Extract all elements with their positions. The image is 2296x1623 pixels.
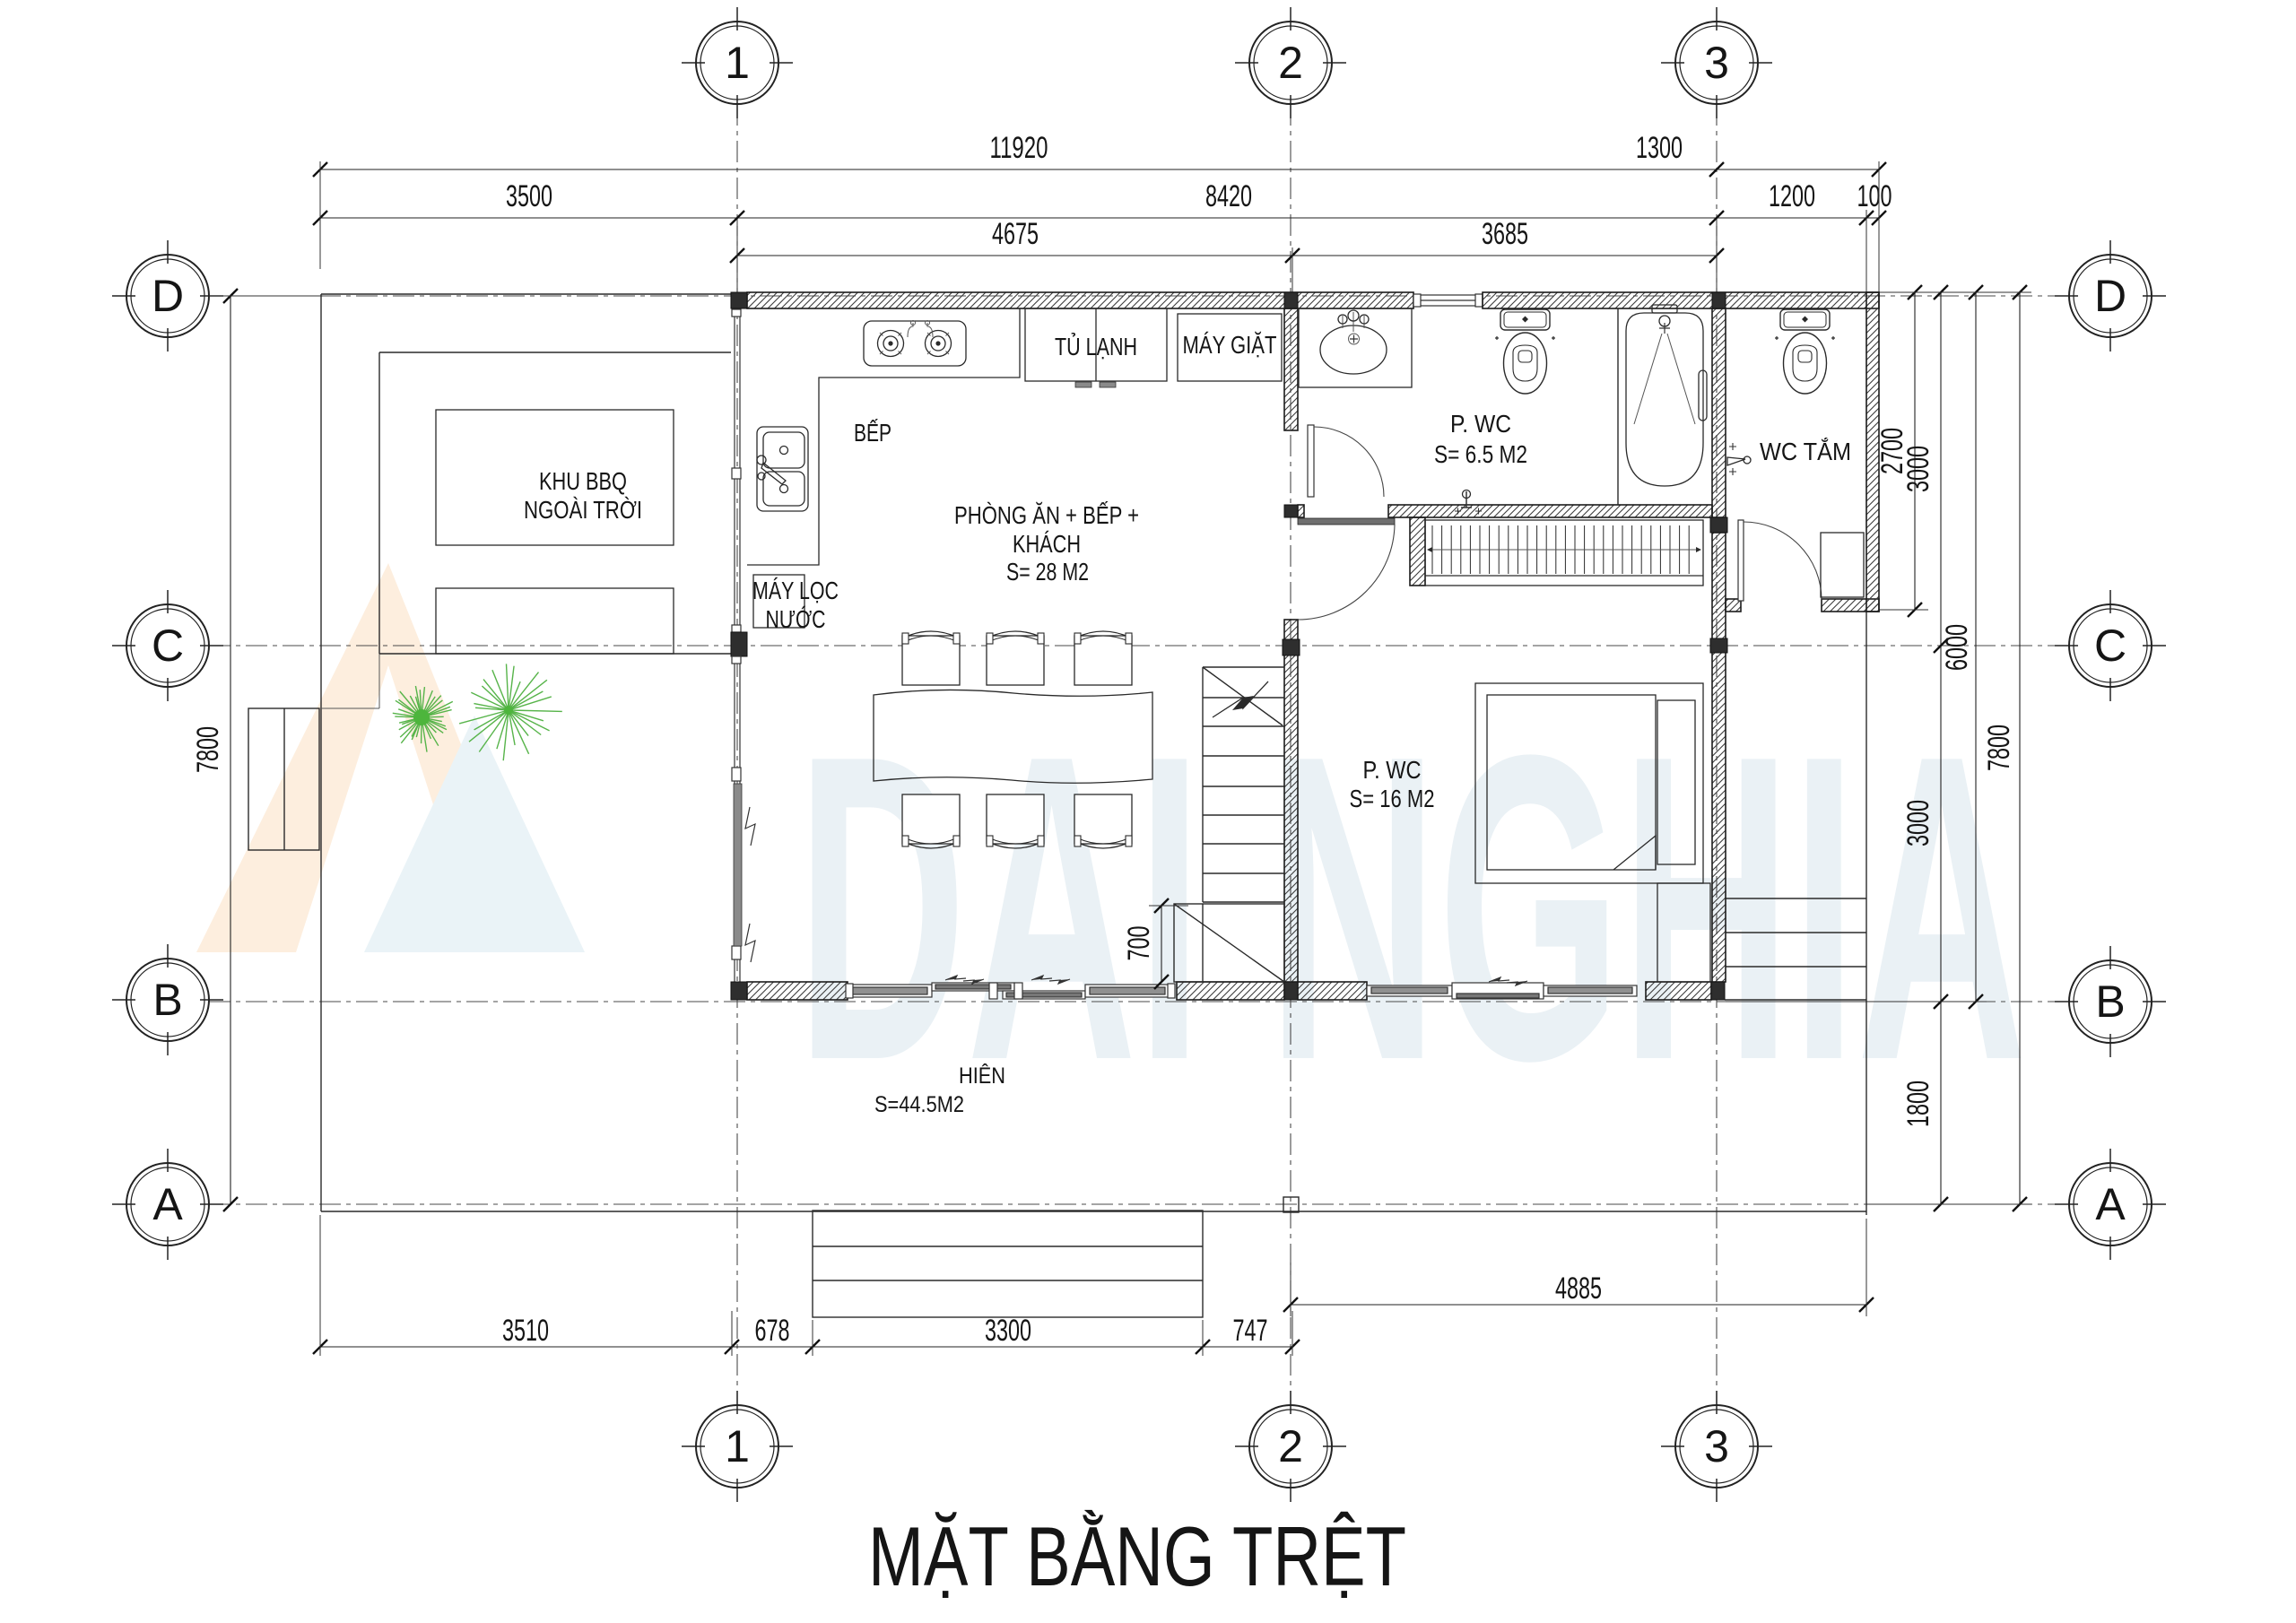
svg-text:D: D	[2094, 271, 2126, 321]
svg-text:S=44.5M2: S=44.5M2	[874, 1092, 964, 1117]
svg-text:3000: 3000	[1901, 446, 1935, 492]
svg-text:P. WC: P. WC	[1450, 410, 1511, 438]
svg-text:2: 2	[1278, 1421, 1303, 1471]
svg-text:MÁY GIẶT: MÁY GIẶT	[1183, 331, 1277, 359]
svg-text:3300: 3300	[985, 1314, 1031, 1348]
svg-text:C: C	[2094, 621, 2126, 671]
svg-text:1800: 1800	[1901, 1081, 1935, 1127]
svg-text:678: 678	[755, 1314, 790, 1348]
svg-text:3: 3	[1704, 38, 1729, 88]
svg-text:D: D	[152, 271, 184, 321]
svg-text:3500: 3500	[506, 179, 552, 213]
svg-text:BẾP: BẾP	[854, 419, 891, 447]
svg-text:7800: 7800	[191, 726, 225, 773]
svg-text:S= 16 M2: S= 16 M2	[1350, 785, 1435, 812]
svg-text:100: 100	[1857, 179, 1892, 213]
svg-text:C: C	[152, 621, 184, 671]
svg-text:4885: 4885	[1555, 1271, 1602, 1306]
svg-text:PHÒNG ĂN + BẾP +: PHÒNG ĂN + BẾP +	[954, 501, 1139, 529]
svg-text:MẶT BẰNG TRỆT: MẶT BẰNG TRỆT	[868, 1509, 1406, 1603]
svg-text:7800: 7800	[1982, 725, 2016, 771]
svg-text:3000: 3000	[1901, 800, 1935, 846]
svg-text:1300: 1300	[1636, 131, 1683, 165]
svg-text:747: 747	[1233, 1314, 1268, 1348]
svg-text:700: 700	[1122, 926, 1156, 961]
svg-text:2: 2	[1278, 38, 1303, 88]
svg-text:1: 1	[725, 38, 750, 88]
svg-text:KHU BBQ: KHU BBQ	[539, 467, 627, 495]
svg-text:1200: 1200	[1769, 179, 1815, 213]
svg-text:S= 28 M2: S= 28 M2	[1006, 558, 1089, 586]
svg-text:A: A	[152, 1179, 183, 1229]
svg-text:KHÁCH: KHÁCH	[1013, 530, 1081, 558]
svg-text:NGOÀI TRỜI: NGOÀI TRỜI	[524, 496, 642, 524]
svg-text:B: B	[2095, 976, 2125, 1027]
svg-text:B: B	[152, 975, 182, 1025]
svg-text:MÁY LỌC: MÁY LỌC	[752, 577, 839, 604]
svg-text:3510: 3510	[502, 1314, 549, 1348]
svg-text:3: 3	[1704, 1421, 1729, 1471]
svg-text:11920: 11920	[990, 131, 1048, 165]
svg-text:A: A	[2095, 1179, 2126, 1229]
svg-text:3685: 3685	[1482, 217, 1528, 251]
svg-text:S= 6.5 M2: S= 6.5 M2	[1434, 440, 1527, 468]
svg-text:1: 1	[725, 1421, 750, 1471]
svg-text:8420: 8420	[1205, 179, 1252, 213]
svg-text:P. WC: P. WC	[1363, 756, 1422, 784]
svg-text:HIÊN: HIÊN	[959, 1063, 1005, 1089]
svg-text:TỦ LẠNH: TỦ LẠNH	[1055, 332, 1137, 360]
svg-text:WC TẮM: WC TẮM	[1760, 438, 1851, 465]
svg-text:4675: 4675	[992, 217, 1039, 251]
svg-text:6000: 6000	[1940, 624, 1974, 671]
svg-text:NƯỚC: NƯỚC	[766, 605, 826, 633]
